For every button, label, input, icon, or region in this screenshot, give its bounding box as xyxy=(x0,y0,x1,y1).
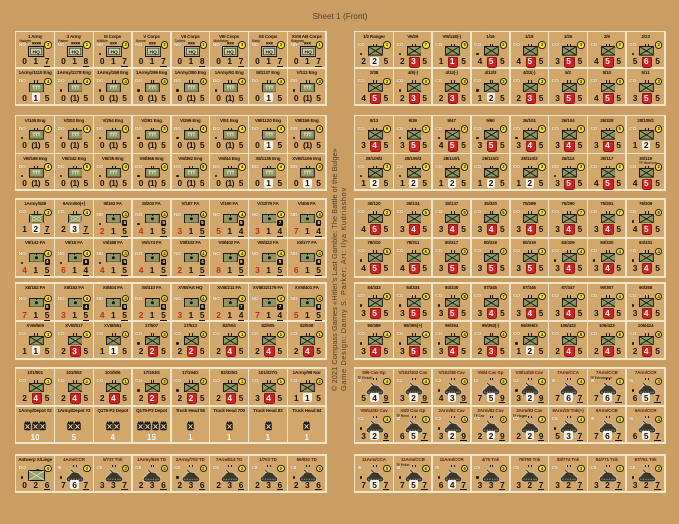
svg-text:HQ: HQ xyxy=(227,49,235,55)
svg-text:HQ: HQ xyxy=(149,49,157,55)
svg-text:HQ: HQ xyxy=(33,49,41,55)
svg-text:HQ: HQ xyxy=(304,49,312,55)
svg-text:HQ: HQ xyxy=(188,49,196,55)
svg-text:HQ: HQ xyxy=(72,49,80,55)
svg-text:HQ: HQ xyxy=(110,49,118,55)
svg-text:HQ: HQ xyxy=(266,49,274,55)
